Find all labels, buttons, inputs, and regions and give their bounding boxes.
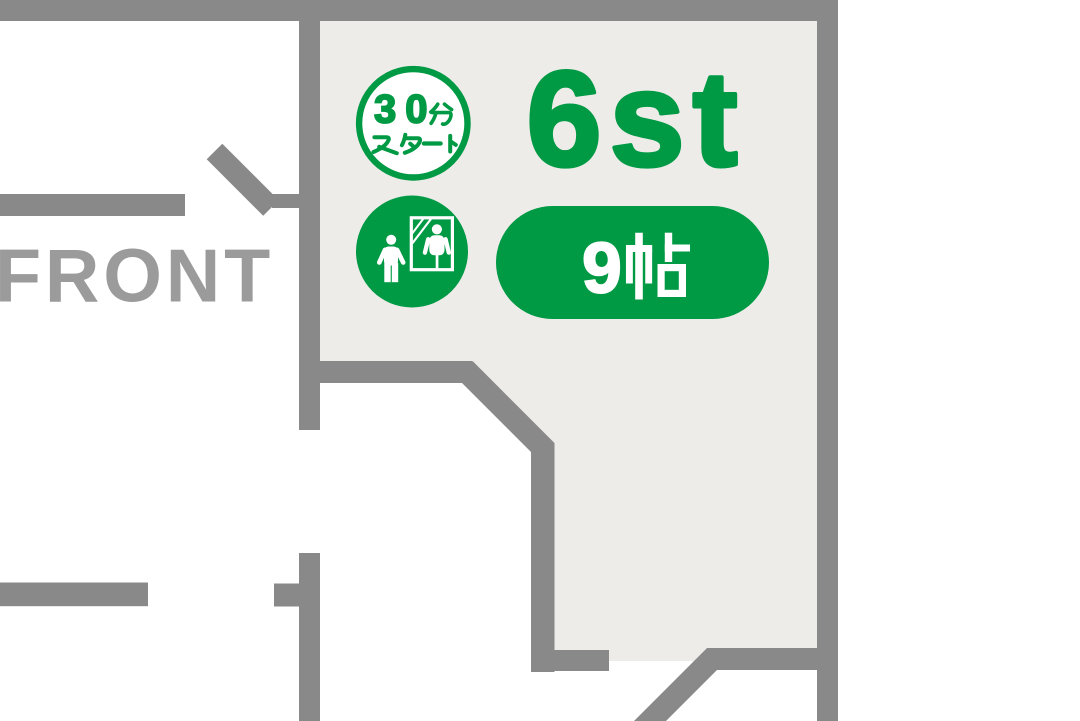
svg-text:30: 30	[374, 87, 437, 131]
svg-text:9: 9	[582, 228, 622, 308]
svg-text:FRONT: FRONT	[0, 233, 274, 317]
svg-text:6st: 6st	[527, 43, 746, 194]
